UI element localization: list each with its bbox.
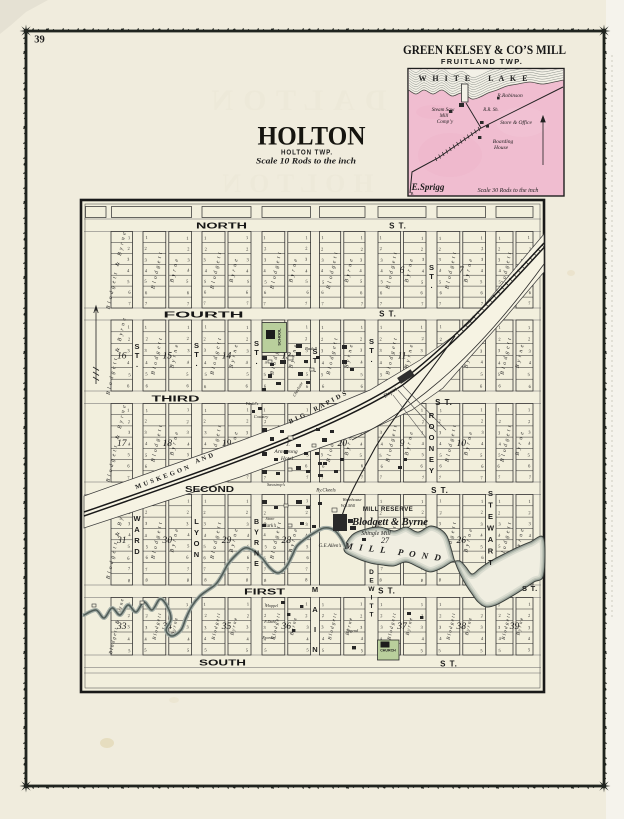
svg-text:GREEN KELSEY & CO’S MILL: GREEN KELSEY & CO’S MILL [403, 43, 566, 57]
svg-text:30: 30 [161, 536, 172, 546]
svg-text:18: 18 [162, 439, 172, 449]
svg-text:J.: J. [286, 442, 290, 448]
svg-text:Comp’y: Comp’y [437, 119, 454, 125]
svg-text:Wedd’s: Wedd’s [246, 401, 259, 406]
svg-text:S T.: S T. [389, 222, 407, 231]
svg-text:26: 26 [456, 536, 466, 546]
svg-text:6: 6 [400, 266, 405, 276]
svg-text:28: 28 [281, 536, 291, 546]
svg-text:E.Sprigg: E.Sprigg [411, 182, 445, 192]
svg-text:FIRST: FIRST [244, 588, 285, 597]
svg-text:10: 10 [456, 439, 466, 449]
svg-text:House: House [493, 145, 509, 151]
svg-text:SOUTH: SOUTH [199, 659, 246, 668]
svg-text:39: 39 [34, 35, 45, 46]
svg-text:FOURTH: FOURTH [164, 311, 245, 320]
svg-text:THIRD: THIRD [152, 395, 200, 404]
svg-text:Scale 30 Rods to the inch: Scale 30 Rods to the inch [478, 188, 539, 194]
svg-text:38: 38 [455, 622, 466, 632]
svg-text:Hoppel: Hoppel [265, 603, 279, 608]
svg-text:G.E.Allen’s: G.E.Allen’s [319, 544, 342, 549]
svg-text:Warehouse: Warehouse [342, 497, 361, 502]
svg-text:HOLTON: HOLTON [214, 169, 373, 198]
svg-text:27: 27 [381, 536, 390, 545]
svg-text:Hotel: Hotel [280, 456, 294, 462]
svg-text:Sawstrop’s: Sawstrop’s [267, 482, 285, 487]
svg-text:Armstrong: Armstrong [273, 449, 298, 455]
svg-text:11: 11 [398, 352, 407, 362]
svg-text:37: 37 [396, 622, 408, 632]
svg-text:SECOND: SECOND [185, 485, 234, 494]
svg-text:17: 17 [117, 439, 128, 449]
svg-text:29: 29 [222, 536, 232, 546]
svg-text:HOLTON: HOLTON [258, 122, 366, 151]
svg-text:MILL RESERVE: MILL RESERVE [363, 506, 413, 513]
svg-text:33: 33 [116, 622, 127, 632]
svg-text:Clark’s: Clark’s [262, 524, 276, 529]
svg-text:W H I T E L A K E: W H I T E L A K E [419, 74, 530, 83]
svg-text:FRUITLAND TWP.: FRUITLAND TWP. [441, 57, 523, 66]
svg-text:S T.: S T. [522, 584, 538, 593]
svg-text:Ry.Ckeels: Ry.Ckeels [315, 489, 336, 494]
svg-text:S T.: S T. [378, 587, 396, 596]
svg-text:S T.: S T. [435, 398, 453, 407]
svg-text:DALTON: DALTON [201, 84, 386, 117]
svg-text:39: 39 [509, 622, 520, 632]
svg-text:B: B [410, 191, 413, 196]
svg-text:S T.: S T. [379, 310, 397, 319]
svg-text:NORTH: NORTH [196, 222, 247, 231]
svg-text:Store & Office: Store & Office [500, 119, 532, 126]
svg-text:Store: Store [266, 516, 275, 521]
svg-text:Scale 10 Rods to the inch: Scale 10 Rods to the inch [256, 156, 356, 166]
svg-text:14: 14 [222, 352, 232, 362]
svg-text:Blodgett & Byrne: Blodgett & Byrne [351, 517, 428, 528]
svg-text:R.R. Sh.: R.R. Sh. [482, 108, 498, 113]
svg-text:Country: Country [254, 414, 268, 419]
svg-text:F.Dahl: F.Dahl [263, 619, 276, 624]
svg-text:S T.: S T. [440, 660, 458, 669]
svg-text:Tagend: Tagend [346, 628, 359, 633]
svg-text:R.Robinson: R.Robinson [496, 93, 523, 99]
svg-text:35: 35 [221, 622, 232, 632]
svg-text:SCHOOL: SCHOOL [277, 328, 282, 346]
svg-text:16: 16 [117, 352, 127, 362]
svg-text:CHURCH: CHURCH [380, 649, 396, 653]
svg-text:Frankel: Frankel [261, 635, 276, 640]
svg-text:36: 36 [280, 622, 291, 632]
svg-text:9: 9 [400, 439, 405, 449]
svg-text:15: 15 [162, 352, 172, 362]
svg-text:31: 31 [116, 536, 127, 546]
svg-text:W.S.Mill: W.S.Mill [341, 503, 356, 508]
svg-text:S T.: S T. [431, 486, 449, 495]
